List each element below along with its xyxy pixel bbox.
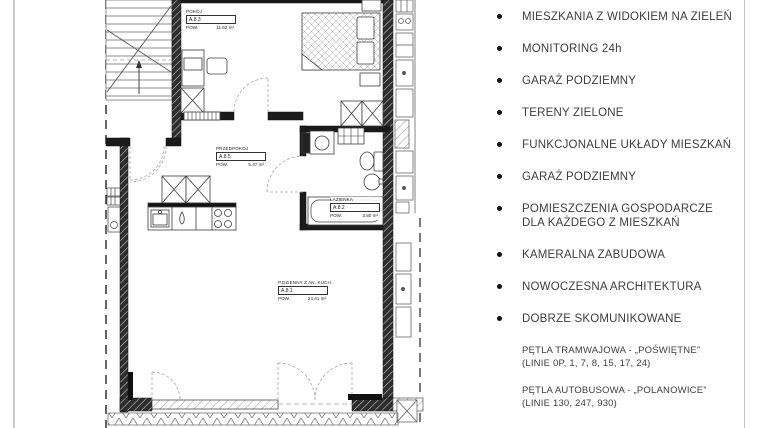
floor-plan-drawing <box>0 0 490 428</box>
list-item: TERENY ZIELONE <box>490 106 746 120</box>
area-label: POW. <box>186 25 198 31</box>
feature-label: NOWOCZESNA ARCHITEKTURA <box>522 280 702 294</box>
bullet-icon <box>497 206 502 211</box>
room-code: A.8.1 <box>278 286 328 295</box>
washing-machine <box>310 131 334 154</box>
feature-label: MONITORING 24h <box>522 42 622 56</box>
room-label-bathroom: ŁAZIENKA A.8.2 POW.3.80 m² <box>330 197 382 220</box>
wardrobe-icon <box>186 176 210 203</box>
feature-label: TERENY ZIELONE <box>522 106 624 120</box>
note-line: PĘTLA AUTOBUSOWA - „POLANOWICE” <box>522 384 746 397</box>
wardrobe-icon <box>341 101 362 126</box>
vertical-divider <box>744 0 745 428</box>
bathroom-sink <box>364 174 383 190</box>
list-item: GARAŻ PODZIEMNY <box>490 74 746 88</box>
bullet-icon <box>497 78 502 83</box>
list-item: NOWOCZESNA ARCHITEKTURA <box>490 280 746 294</box>
list-item: MIESZKANIA Z WIDOKIEM NA ZIELEŃ <box>490 10 746 24</box>
balcony-edge <box>108 413 398 425</box>
wardrobe-icon <box>162 176 186 203</box>
neighbour-fixtures <box>393 0 423 422</box>
feature-label: DOBRZE SKOMUNIKOWANE <box>522 312 681 326</box>
bullet-icon <box>497 142 502 147</box>
feature-label-line2: DLA KAŻDEGO Z MIESZKAŃ <box>522 216 713 230</box>
bullet-icon <box>497 284 502 289</box>
list-item: POMIESZCZENIA GOSPODARCZEDLA KAŻDEGO Z M… <box>490 202 746 230</box>
bullet-icon <box>497 46 502 51</box>
area-label: POW. <box>216 162 228 168</box>
room-label-hall: PRZEDPOKÓJ A.8.5 POW.5.47 m² <box>216 146 268 169</box>
area-value: 3.80 m² <box>362 213 378 219</box>
feature-label: POMIESZCZENIA GOSPODARCZE <box>522 203 713 215</box>
list-item: KAMERALNA ZABUDOWA <box>490 248 746 262</box>
toilet <box>360 152 383 171</box>
radiator <box>128 372 133 400</box>
bullet-icon <box>497 14 502 19</box>
feature-label: KAMERALNA ZABUDOWA <box>522 248 665 262</box>
bullet-icon <box>497 316 502 321</box>
bullet-icon <box>497 110 502 115</box>
bullet-icon <box>497 174 502 179</box>
nightstand <box>362 0 381 11</box>
room-code: A.8.2 <box>330 203 380 212</box>
room-code: A.8.3 <box>186 15 236 24</box>
bus-loop-note: PĘTLA AUTOBUSOWA - „POLANOWICE” (LINIE 1… <box>522 384 746 410</box>
room-code: A.8.5 <box>216 152 266 161</box>
list-item: DOBRZE SKOMUNIKOWANE <box>490 312 746 326</box>
list-item: GARAŻ PODZIEMNY <box>490 170 746 184</box>
room-label-bedroom: POKÓJ A.8.3 POW.11.62 m² <box>186 9 238 32</box>
room-label-living: P.DZIENNY Z AN. KUCH. A.8.1 POW.24.41 m² <box>278 280 330 303</box>
tram-loop-note: PĘTLA TRAMWAJOWA - „POŚWIĘTNE” (LINIE 0P… <box>522 344 746 370</box>
area-value: 11.62 m² <box>216 25 234 31</box>
area-value: 24.41 m² <box>308 296 326 302</box>
chair <box>207 58 227 74</box>
wardrobe-icon <box>362 101 383 126</box>
radiator <box>184 112 220 120</box>
feature-label: FUNKCJONALNE UKŁADY MIESZKAŃ <box>522 138 731 152</box>
kitchen-sink <box>151 210 169 227</box>
feature-label: GARAŻ PODZIEMNY <box>522 74 636 88</box>
area-label: POW. <box>278 296 290 302</box>
radiator <box>348 394 382 400</box>
wardrobe-icon <box>181 88 204 113</box>
area-value: 5.47 m² <box>248 162 264 168</box>
area-label: POW. <box>330 213 342 219</box>
feature-label: GARAŻ PODZIEMNY <box>522 170 636 184</box>
bullet-icon <box>497 252 502 257</box>
water-heater <box>302 133 310 153</box>
feature-label: MIESZKANIA Z WIDOKIEM NA ZIELEŃ <box>522 10 732 24</box>
note-line: (LINIE 130, 247, 930) <box>522 397 746 410</box>
note-line: PĘTLA TRAMWAJOWA - „POŚWIĘTNE” <box>522 344 746 357</box>
note-line: (LINIE 0P, 1, 7, 8, 15, 17, 24) <box>522 357 746 370</box>
wardrobe-icon <box>397 400 417 422</box>
nightstand <box>360 73 380 86</box>
features-panel: MIESZKANIA Z WIDOKIEM NA ZIELEŃ MONITORI… <box>490 10 746 424</box>
shelf <box>338 128 364 144</box>
bed <box>302 13 380 70</box>
floor-plan: POKÓJ A.8.3 POW.11.62 m² PRZEDPOKÓJ A.8.… <box>0 0 490 428</box>
room-name: P.DZIENNY Z AN. KUCH. <box>278 280 330 286</box>
list-item: MONITORING 24h <box>490 42 746 56</box>
living-room-fixtures <box>128 372 382 400</box>
kitchen-annex <box>148 176 236 230</box>
staircase <box>106 0 172 100</box>
transport-notes: PĘTLA TRAMWAJOWA - „POŚWIĘTNE” (LINIE 0P… <box>522 344 746 410</box>
list-item: FUNKCJONALNE UKŁADY MIESZKAŃ <box>490 138 746 152</box>
